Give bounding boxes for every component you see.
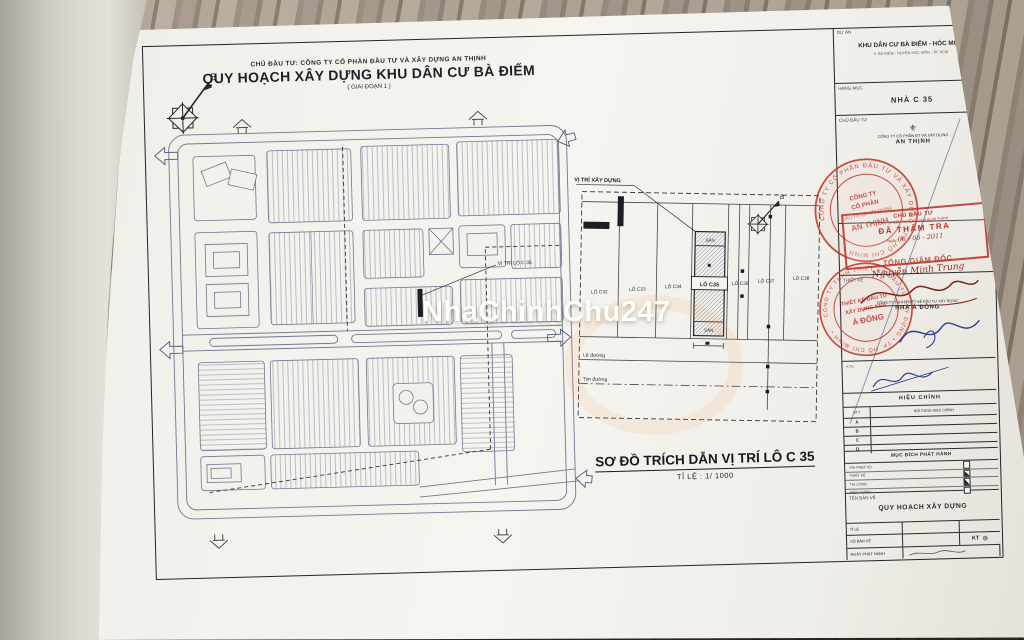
project-name: KHU DÂN CƯ BÀ ĐIỂM - HÓC MÔN [834, 39, 987, 50]
drawing-name: QUY HOẠCH XÂY DỰNG [846, 502, 999, 513]
drawing-name-label: TÊN BẢN VẼ [849, 495, 876, 501]
detail-callout: VỊ TRÍ XÂY DỰNG [574, 175, 621, 184]
lot-label-c38: LÔ C38 [793, 275, 810, 282]
lot-label-c32: LÔ C32 [591, 288, 608, 295]
detail-compass-label: B [780, 194, 785, 201]
item-label: HẠNG MỤC [838, 85, 863, 91]
purpose-section: MỤC ĐÍCH PHÁT HÀNH XIN PHÉP XD THIẾT KẾ … [845, 448, 999, 494]
detail-compass-icon: B [747, 193, 785, 235]
yard-label-top: SÂN [706, 237, 715, 243]
lot-label-c33: LÔ C33 [629, 286, 646, 293]
checkbox-icon [963, 478, 971, 486]
watermark-text: NhaChinhChu247 [422, 296, 671, 329]
pen-stroke-line [820, 98, 989, 442]
site-plan-location-callout: VỊ TRÍ LÔ C 35 [498, 259, 532, 267]
issue-date-scribble [907, 546, 967, 558]
checkbox-icon [963, 469, 971, 477]
lot-label-c37: LÔ C37 [758, 277, 775, 284]
compass-north-label: B [210, 72, 217, 83]
checkbox-icon [963, 461, 971, 469]
lot-label-c36: LÔ C36 [732, 280, 749, 287]
drawing-name-section: TÊN BẢN VẼ QUY HOẠCH XÂY DỰNG [846, 490, 1000, 524]
kt-initials: KT [972, 535, 979, 541]
lot-label-c34: LÔ C34 [665, 283, 682, 290]
project-label: DỰ ÁN [837, 30, 852, 35]
registration-mark-icon: ⊕ [982, 534, 988, 542]
footer-table: TỈ LỆ SỐ BẢN VẼ KT⊕ NGÀY PHÁT HÀNH [847, 520, 1001, 560]
project-section: DỰ ÁN KHU DÂN CƯ BÀ ĐIỂM - HÓC MÔN X. BÀ… [834, 24, 988, 84]
project-address: X. BÀ ĐIỂM - HUYỆN HÓC MÔN - TP. HCM [834, 49, 987, 57]
